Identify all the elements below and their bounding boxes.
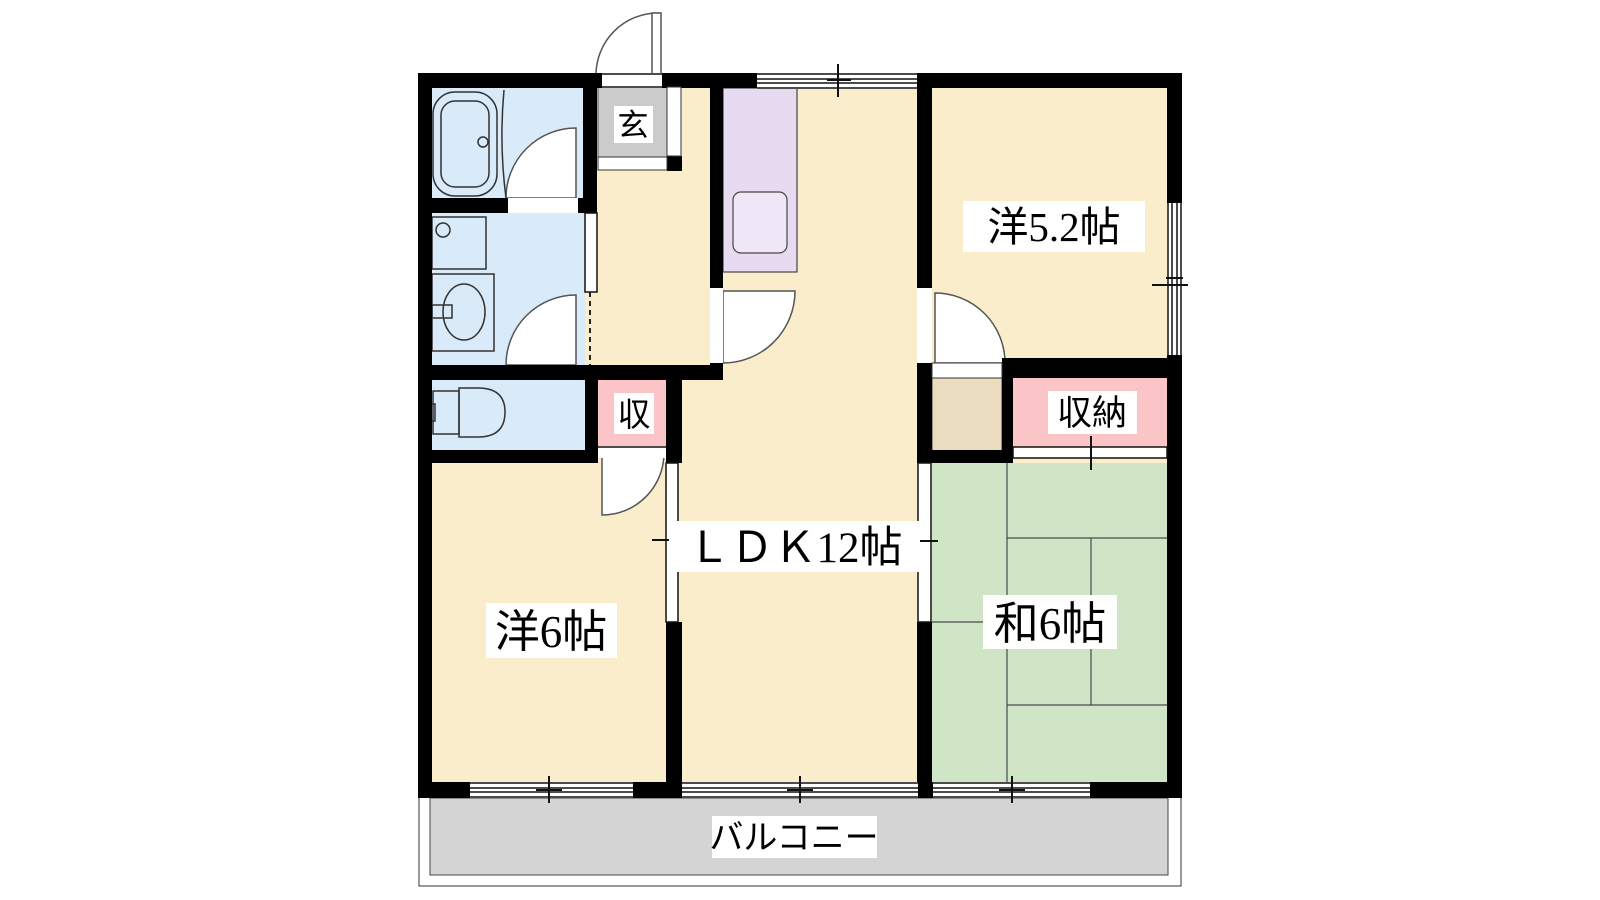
wall-right-upper	[1167, 73, 1182, 203]
wall-top-right	[917, 73, 1182, 88]
genkan-corner-post	[667, 156, 682, 171]
wall-right-lower	[1167, 355, 1182, 798]
wall-bottom-4	[1090, 782, 1182, 798]
storage-label: 収納	[1057, 394, 1127, 433]
wall-tatami-topleft	[917, 450, 1013, 463]
wall-storage-left	[1002, 378, 1013, 450]
balcony-label: バルコニー	[709, 820, 878, 857]
wall-bottom-3	[918, 782, 933, 798]
wall-bathroom-right	[583, 88, 597, 213]
genkan-step-horizontal	[598, 157, 667, 170]
alcove-tan-box	[932, 378, 1002, 452]
wall-kitchen	[710, 88, 723, 288]
wall-toilet-right	[585, 380, 598, 450]
wall-top-left	[418, 73, 602, 88]
wall-ldk-tatami-lower	[917, 622, 932, 782]
wall-bath-wash-left	[418, 198, 508, 213]
wall-left	[418, 73, 432, 798]
closet-label: 収	[618, 398, 651, 434]
wall-bottom-2	[633, 782, 682, 798]
kitchen-sink	[733, 192, 787, 253]
western6-label: 洋6帖	[495, 607, 608, 657]
ldk-label: ＬＤＫ12帖	[688, 525, 903, 572]
floorplan-canvas: 玄 洋5.2帖 収 収納 ＬＤＫ12帖 洋6帖 和6帖 バルコニー	[0, 0, 1600, 900]
entrance-door-leaf	[652, 13, 661, 75]
western52-label: 洋5.2帖	[987, 204, 1120, 250]
wall-closet-right	[666, 365, 682, 463]
japanese6-label: 和6帖	[994, 599, 1107, 649]
closet-door-opening	[598, 446, 666, 458]
wall-storage-top	[1002, 358, 1167, 378]
bathroom-door-opening	[508, 198, 578, 213]
floorplan-drawing: 玄 洋5.2帖 収 収納 ＬＤＫ12帖 洋6帖 和6帖 バルコニー	[0, 0, 1600, 900]
washroom-thin-partition	[585, 213, 597, 292]
wall-top-mid	[662, 73, 757, 88]
ldk-hall-door-opening	[710, 288, 723, 363]
wall-ldk-western52-lower	[917, 363, 932, 463]
genkan-step-vertical	[667, 87, 681, 156]
wall-ldk-western52-upper	[917, 88, 932, 288]
wall-ldk-western6-lower	[666, 622, 682, 782]
alcove-counter-strip	[932, 363, 1002, 378]
entrance-opening	[602, 73, 662, 88]
wall-kitchen-foot	[710, 363, 723, 380]
western52-door-opening	[917, 288, 932, 363]
genkan-label: 玄	[618, 108, 649, 143]
wall-bottom-1	[418, 782, 470, 798]
wall-toilet-bottom	[418, 450, 598, 463]
entrance-door-arc	[596, 13, 658, 75]
